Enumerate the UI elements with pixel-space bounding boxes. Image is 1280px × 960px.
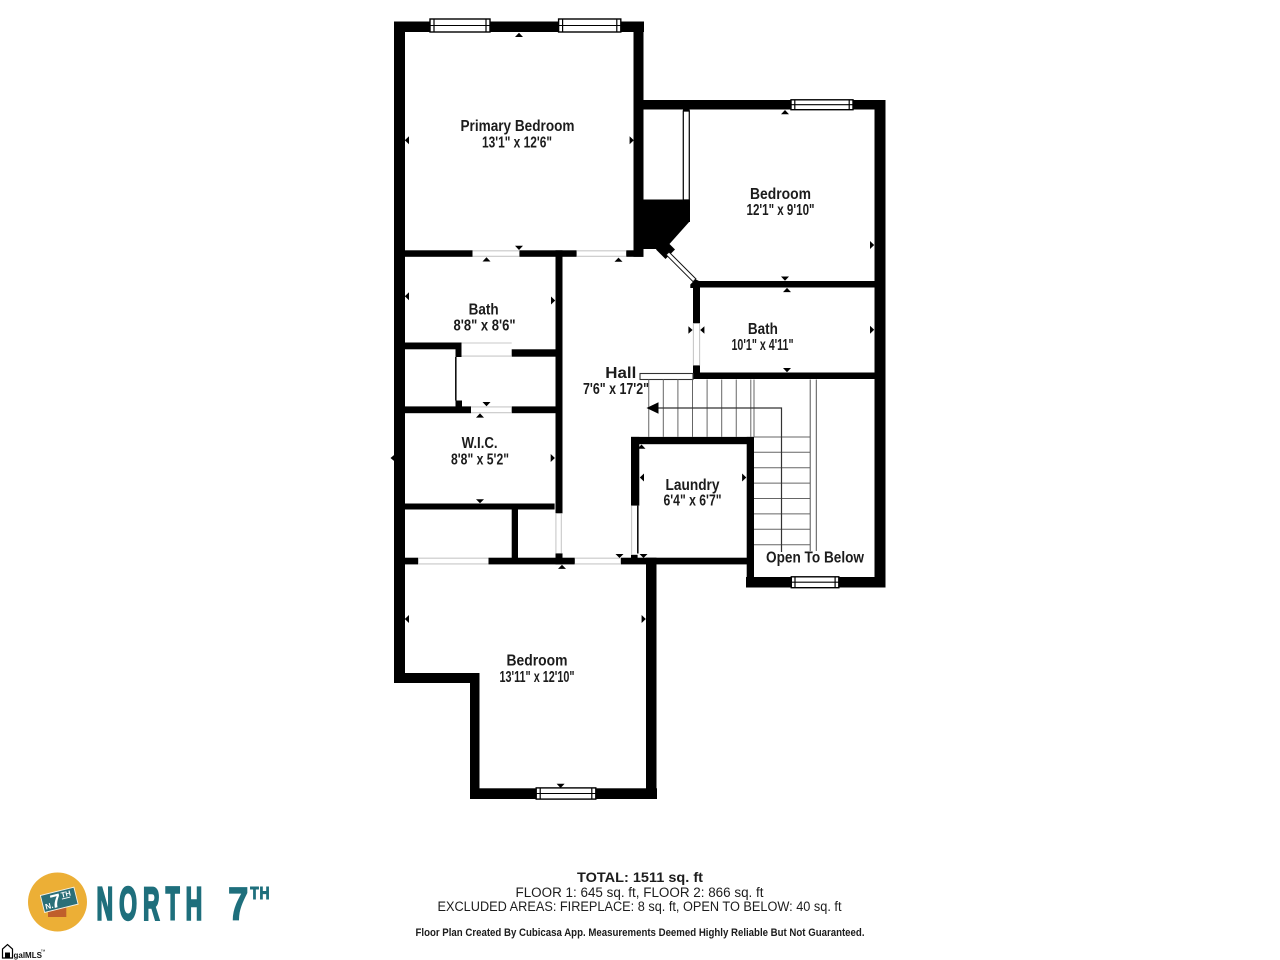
svg-text:Bath: Bath: [469, 302, 499, 319]
svg-text:Laundry: Laundry: [666, 477, 720, 494]
svg-text:™: ™: [41, 949, 46, 955]
svg-text:EXCLUDED AREAS: FIREPLACE: 8 s: EXCLUDED AREAS: FIREPLACE: 8 sq. ft, OPE…: [438, 899, 842, 914]
svg-text:W.I.C.: W.I.C.: [462, 435, 498, 452]
svg-text:Open To Below: Open To Below: [766, 550, 865, 567]
svg-text:galMLS: galMLS: [14, 951, 43, 960]
svg-text:TH: TH: [250, 883, 270, 903]
svg-text:TOTAL: 1511 sq. ft: TOTAL: 1511 sq. ft: [577, 869, 703, 885]
svg-text:FLOOR 1: 645 sq. ft, FLOOR 2:: FLOOR 1: 645 sq. ft, FLOOR 2: 866 sq. ft: [516, 885, 764, 900]
svg-text:13'1" x 12'6": 13'1" x 12'6": [482, 134, 552, 151]
svg-text:Bedroom: Bedroom: [750, 186, 811, 203]
svg-text:Bath: Bath: [748, 321, 778, 338]
svg-text:Primary Bedroom: Primary Bedroom: [461, 118, 575, 135]
svg-text:13'11" x 12'10": 13'11" x 12'10": [500, 669, 575, 686]
svg-text:7'6" x 17'2": 7'6" x 17'2": [583, 381, 649, 398]
svg-text:12'1" x 9'10": 12'1" x 9'10": [747, 202, 815, 219]
svg-text:Bedroom: Bedroom: [507, 652, 568, 669]
svg-text:10'1" x 4'11": 10'1" x 4'11": [732, 337, 794, 354]
svg-text:NORTH: NORTH: [97, 878, 209, 930]
svg-text:6'4" x 6'7": 6'4" x 6'7": [664, 493, 722, 510]
svg-text:Hall: Hall: [605, 365, 636, 382]
svg-text:8'8" x 8'6": 8'8" x 8'6": [454, 318, 516, 335]
svg-text:Floor Plan Created By Cubicasa: Floor Plan Created By Cubicasa App. Meas…: [416, 927, 865, 939]
svg-text:7: 7: [228, 877, 248, 929]
svg-text:8'8" x 5'2": 8'8" x 5'2": [451, 452, 509, 469]
